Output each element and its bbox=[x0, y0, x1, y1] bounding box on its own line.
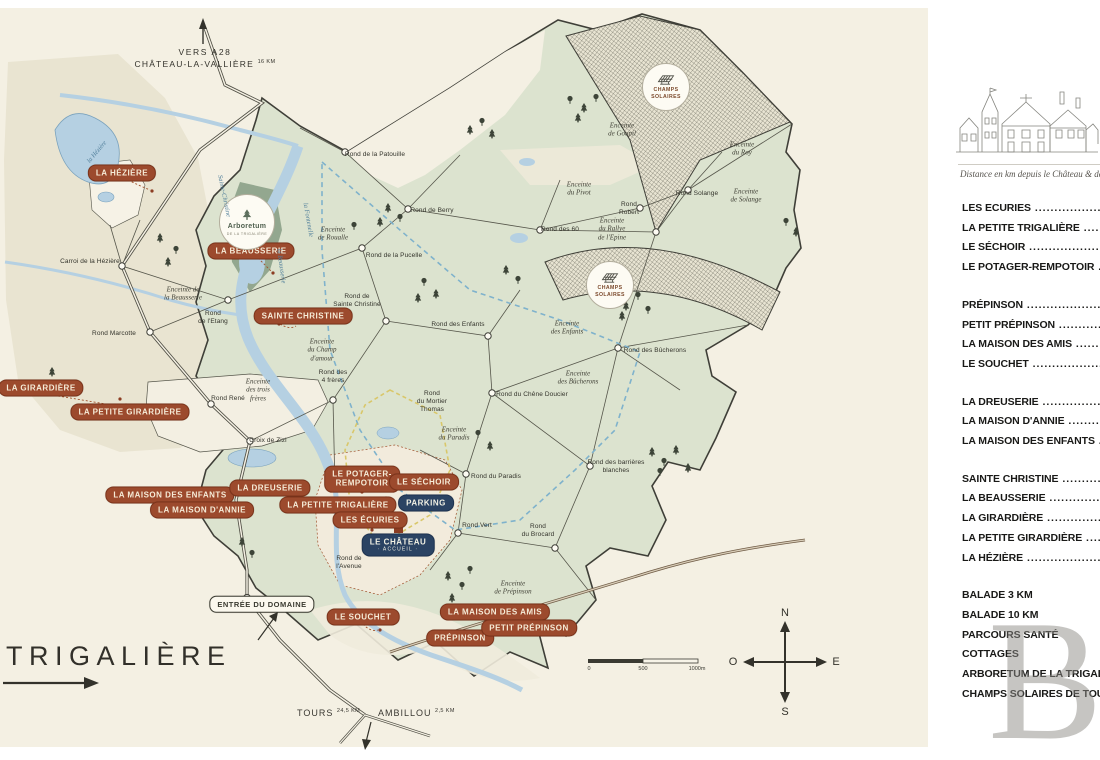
place-label-rond-du-paradis: Rond du Paradis bbox=[471, 473, 521, 481]
place-label-rond: Rond du Mortier Thomas bbox=[417, 390, 447, 414]
map-badge-la-petite-girardi-re: LA PETITE GIRARDIÈRE bbox=[70, 403, 189, 420]
area-label-enceinte-du-pivot: Enceinte du Pivot bbox=[567, 181, 592, 198]
legend-group: LES ECURIESLA PETITE TRIGALIÈRELE SÉCHOI… bbox=[962, 199, 1100, 278]
area-label-enceinte-de-goupil: Enceinte de Goupil bbox=[608, 122, 636, 139]
scale-bar bbox=[588, 659, 698, 663]
map-circle-badge-champs-solaires: CHAMPS SOLAIRES bbox=[642, 63, 690, 111]
legend-item-sainte-christine: SAINTE CHRISTINE bbox=[962, 470, 1100, 490]
compass-rose bbox=[743, 621, 827, 703]
area-label-enceinte-du-champ-d-amour: Enceinte du Champ d'amour bbox=[308, 337, 337, 362]
scale-zero: 0 bbox=[587, 666, 590, 672]
map-badge-le-s-choir: LE SÉCHOIR bbox=[389, 473, 459, 490]
legend-item-petit-pr-pinson: PETIT PRÉPINSON bbox=[962, 316, 1100, 336]
area-label-enceinte-de-la-beausserie: Enceinte de la Beausserie bbox=[164, 286, 202, 303]
map-badge-petit-pr-pinson: PETIT PRÉPINSON bbox=[481, 619, 577, 636]
area-label-enceinte-du-paradis: Enceinte du Paradis bbox=[439, 426, 470, 443]
solar-icon bbox=[656, 74, 676, 86]
map-badge-la-maison-d-annie: LA MAISON D'ANNIE bbox=[150, 501, 254, 518]
map-badge-la-dreuserie: LA DREUSERIE bbox=[229, 479, 310, 496]
legend-item-la-maison-des-enfants: LA MAISON DES ENFANTS bbox=[962, 432, 1100, 452]
compass-east: E bbox=[832, 656, 839, 668]
tree-icon bbox=[240, 208, 254, 222]
legend-item-la-beausserie: LA BEAUSSERIE bbox=[962, 489, 1100, 509]
legend-item-la-maison-des-amis: LA MAISON DES AMIS bbox=[962, 335, 1100, 355]
map-badge-le-ch-teau: LE CHÂTEAU· ACCUEIL · bbox=[362, 533, 435, 556]
legend-item-la-h-zi-re: LA HÉZIÈRE bbox=[962, 549, 1100, 569]
legend-item-la-petite-trigali-re: LA PETITE TRIGALIÈRE bbox=[962, 219, 1100, 239]
place-label-rond-vert: Rond Vert bbox=[462, 522, 492, 530]
map-badge-sainte-christine: SAINTE CHRISTINE bbox=[254, 307, 353, 324]
place-label-rond-des-b-cherons: Rond des Bûcherons bbox=[624, 347, 687, 355]
place-label-rond-ren: Rond René bbox=[211, 395, 245, 403]
area-label-enceinte-du-rallye-de-l-epine: Enceinte du Rallye de l'Epine bbox=[598, 216, 626, 241]
scale-end: 1000m bbox=[689, 666, 706, 672]
route-vers-a28: VERS A28 CHÂTEAU-LA-VALLIÈRE 16 KM bbox=[110, 47, 300, 69]
compass-west: O bbox=[729, 656, 738, 668]
legend-item-la-petite-girardi-re: LA PETITE GIRARDIÈRE bbox=[962, 529, 1100, 549]
place-label-rond-de-la-patouille: Rond de la Patouille bbox=[345, 151, 405, 159]
area-label-enceinte-de-solange: Enceinte de Solange bbox=[731, 188, 762, 205]
route-ambillou: AMBILLOU 2,5 KM bbox=[378, 708, 455, 718]
legend-item-les-ecuries: LES ECURIES bbox=[962, 199, 1100, 219]
place-label-rond-marcotte: Rond Marcotte bbox=[92, 330, 136, 338]
map-badge-la-maison-des-amis: LA MAISON DES AMIS bbox=[440, 603, 550, 620]
legend-caption: Distance en km depuis le Château & des bbox=[960, 169, 1100, 179]
place-label-rond-de-berry: Rond de Berry bbox=[410, 207, 453, 215]
map-badge-parking: PARKING bbox=[398, 494, 454, 511]
legend-item-le-s-choir: LE SÉCHOIR bbox=[962, 238, 1100, 258]
area-label-enceinte-des-trois-fr-res: Enceinte des trois frères bbox=[246, 377, 271, 402]
scale-mid: 500 bbox=[638, 666, 647, 672]
place-label-rond-solange: Rond Solange bbox=[676, 190, 718, 198]
brochure-page: VERS A28 CHÂTEAU-LA-VALLIÈRE 16 KM TRIGA… bbox=[0, 0, 1100, 760]
area-label-enceinte-des-b-cherons: Enceinte des Bûcherons bbox=[558, 370, 599, 387]
place-label-rond-de-la-pucelle: Rond de la Pucelle bbox=[366, 252, 422, 260]
compass-south: S bbox=[781, 706, 788, 718]
legend-group: SAINTE CHRISTINELA BEAUSSERIELA GIRARDIÈ… bbox=[962, 470, 1100, 569]
route-line1: VERS A28 bbox=[110, 47, 300, 57]
chateau-sketch bbox=[950, 84, 1100, 158]
legend-item-le-souchet: LE SOUCHET bbox=[962, 355, 1100, 375]
legend-item-la-girardi-re: LA GIRARDIÈRE bbox=[962, 509, 1100, 529]
route-distance: 16 KM bbox=[258, 59, 276, 65]
place-label-rond-des-barri-res: Rond des barrières blanches bbox=[587, 459, 644, 475]
map-circle-badge-champs-solaires: CHAMPS SOLAIRES bbox=[586, 261, 634, 309]
place-label-rond-du-ch-ne-doucier: Rond du Chêne Doucier bbox=[496, 391, 568, 399]
map-badge-le-souchet: LE SOUCHET bbox=[327, 608, 400, 625]
place-label-rond: Rond Robert bbox=[619, 201, 639, 217]
area-label-enceinte-de-roualle: Enceinte de Roualle bbox=[318, 226, 348, 243]
place-label-rond-de: Rond de l'Avenue bbox=[336, 555, 361, 571]
place-label-rond-des-60: Rond des 60 bbox=[541, 226, 579, 234]
place-label-rond-des-enfants: Rond des Enfants bbox=[431, 321, 484, 329]
place-label-croix-de-zizi: Croix de Zizi bbox=[249, 437, 286, 445]
area-label-enceinte-de-pr-pinson: Enceinte de Prépinson bbox=[494, 580, 531, 597]
area-label-enceinte-des-enfants: Enceinte des Enfants bbox=[551, 320, 583, 337]
watermark-letter: B bbox=[988, 595, 1100, 760]
place-label-rond-des: Rond des 4 frères bbox=[319, 369, 348, 385]
sidebar-divider bbox=[958, 164, 1100, 165]
legend-item-la-maison-d-annie: LA MAISON D'ANNIE bbox=[962, 412, 1100, 432]
area-label-enceinte-du-roy: Enceinte du Roy bbox=[730, 141, 755, 158]
map-badge-entr-e-du-domaine: ENTRÉE DU DOMAINE bbox=[209, 596, 314, 613]
map-badge-la-girardi-re: LA GIRARDIÈRE bbox=[0, 379, 84, 396]
map-title: TRIGALIÈRE bbox=[6, 641, 232, 672]
legend-item-pr-pinson: PRÉPINSON bbox=[962, 296, 1100, 316]
place-label-rond-de: Rond de Sainte Christine bbox=[333, 293, 380, 309]
legend-item-la-dreuserie: LA DREUSERIE bbox=[962, 393, 1100, 413]
compass-north: N bbox=[781, 607, 789, 619]
route-tours: TOURS 24,5 KM bbox=[297, 708, 360, 718]
estate-map: VERS A28 CHÂTEAU-LA-VALLIÈRE 16 KM TRIGA… bbox=[0, 0, 930, 760]
map-badge-les-curies: LES ÉCURIES bbox=[333, 511, 408, 528]
solar-icon bbox=[600, 272, 620, 284]
place-label-rond: Rond du Brocard bbox=[522, 523, 555, 539]
place-label-carroi-de-la-h-zi-re: Carroi de la Hézière bbox=[60, 258, 120, 266]
legend-item-le-potager-rempotoir: LE POTAGER-REMPOTOIR bbox=[962, 258, 1100, 278]
map-badge-la-h-zi-re: LA HÉZIÈRE bbox=[88, 164, 156, 181]
legend-group: PRÉPINSONPETIT PRÉPINSONLA MAISON DES AM… bbox=[962, 296, 1100, 375]
legend-group: LA DREUSERIELA MAISON D'ANNIELA MAISON D… bbox=[962, 393, 1100, 452]
place-label-rond: Rond de l'Etang bbox=[198, 310, 228, 326]
route-line2: CHÂTEAU-LA-VALLIÈRE 16 KM bbox=[110, 59, 300, 69]
